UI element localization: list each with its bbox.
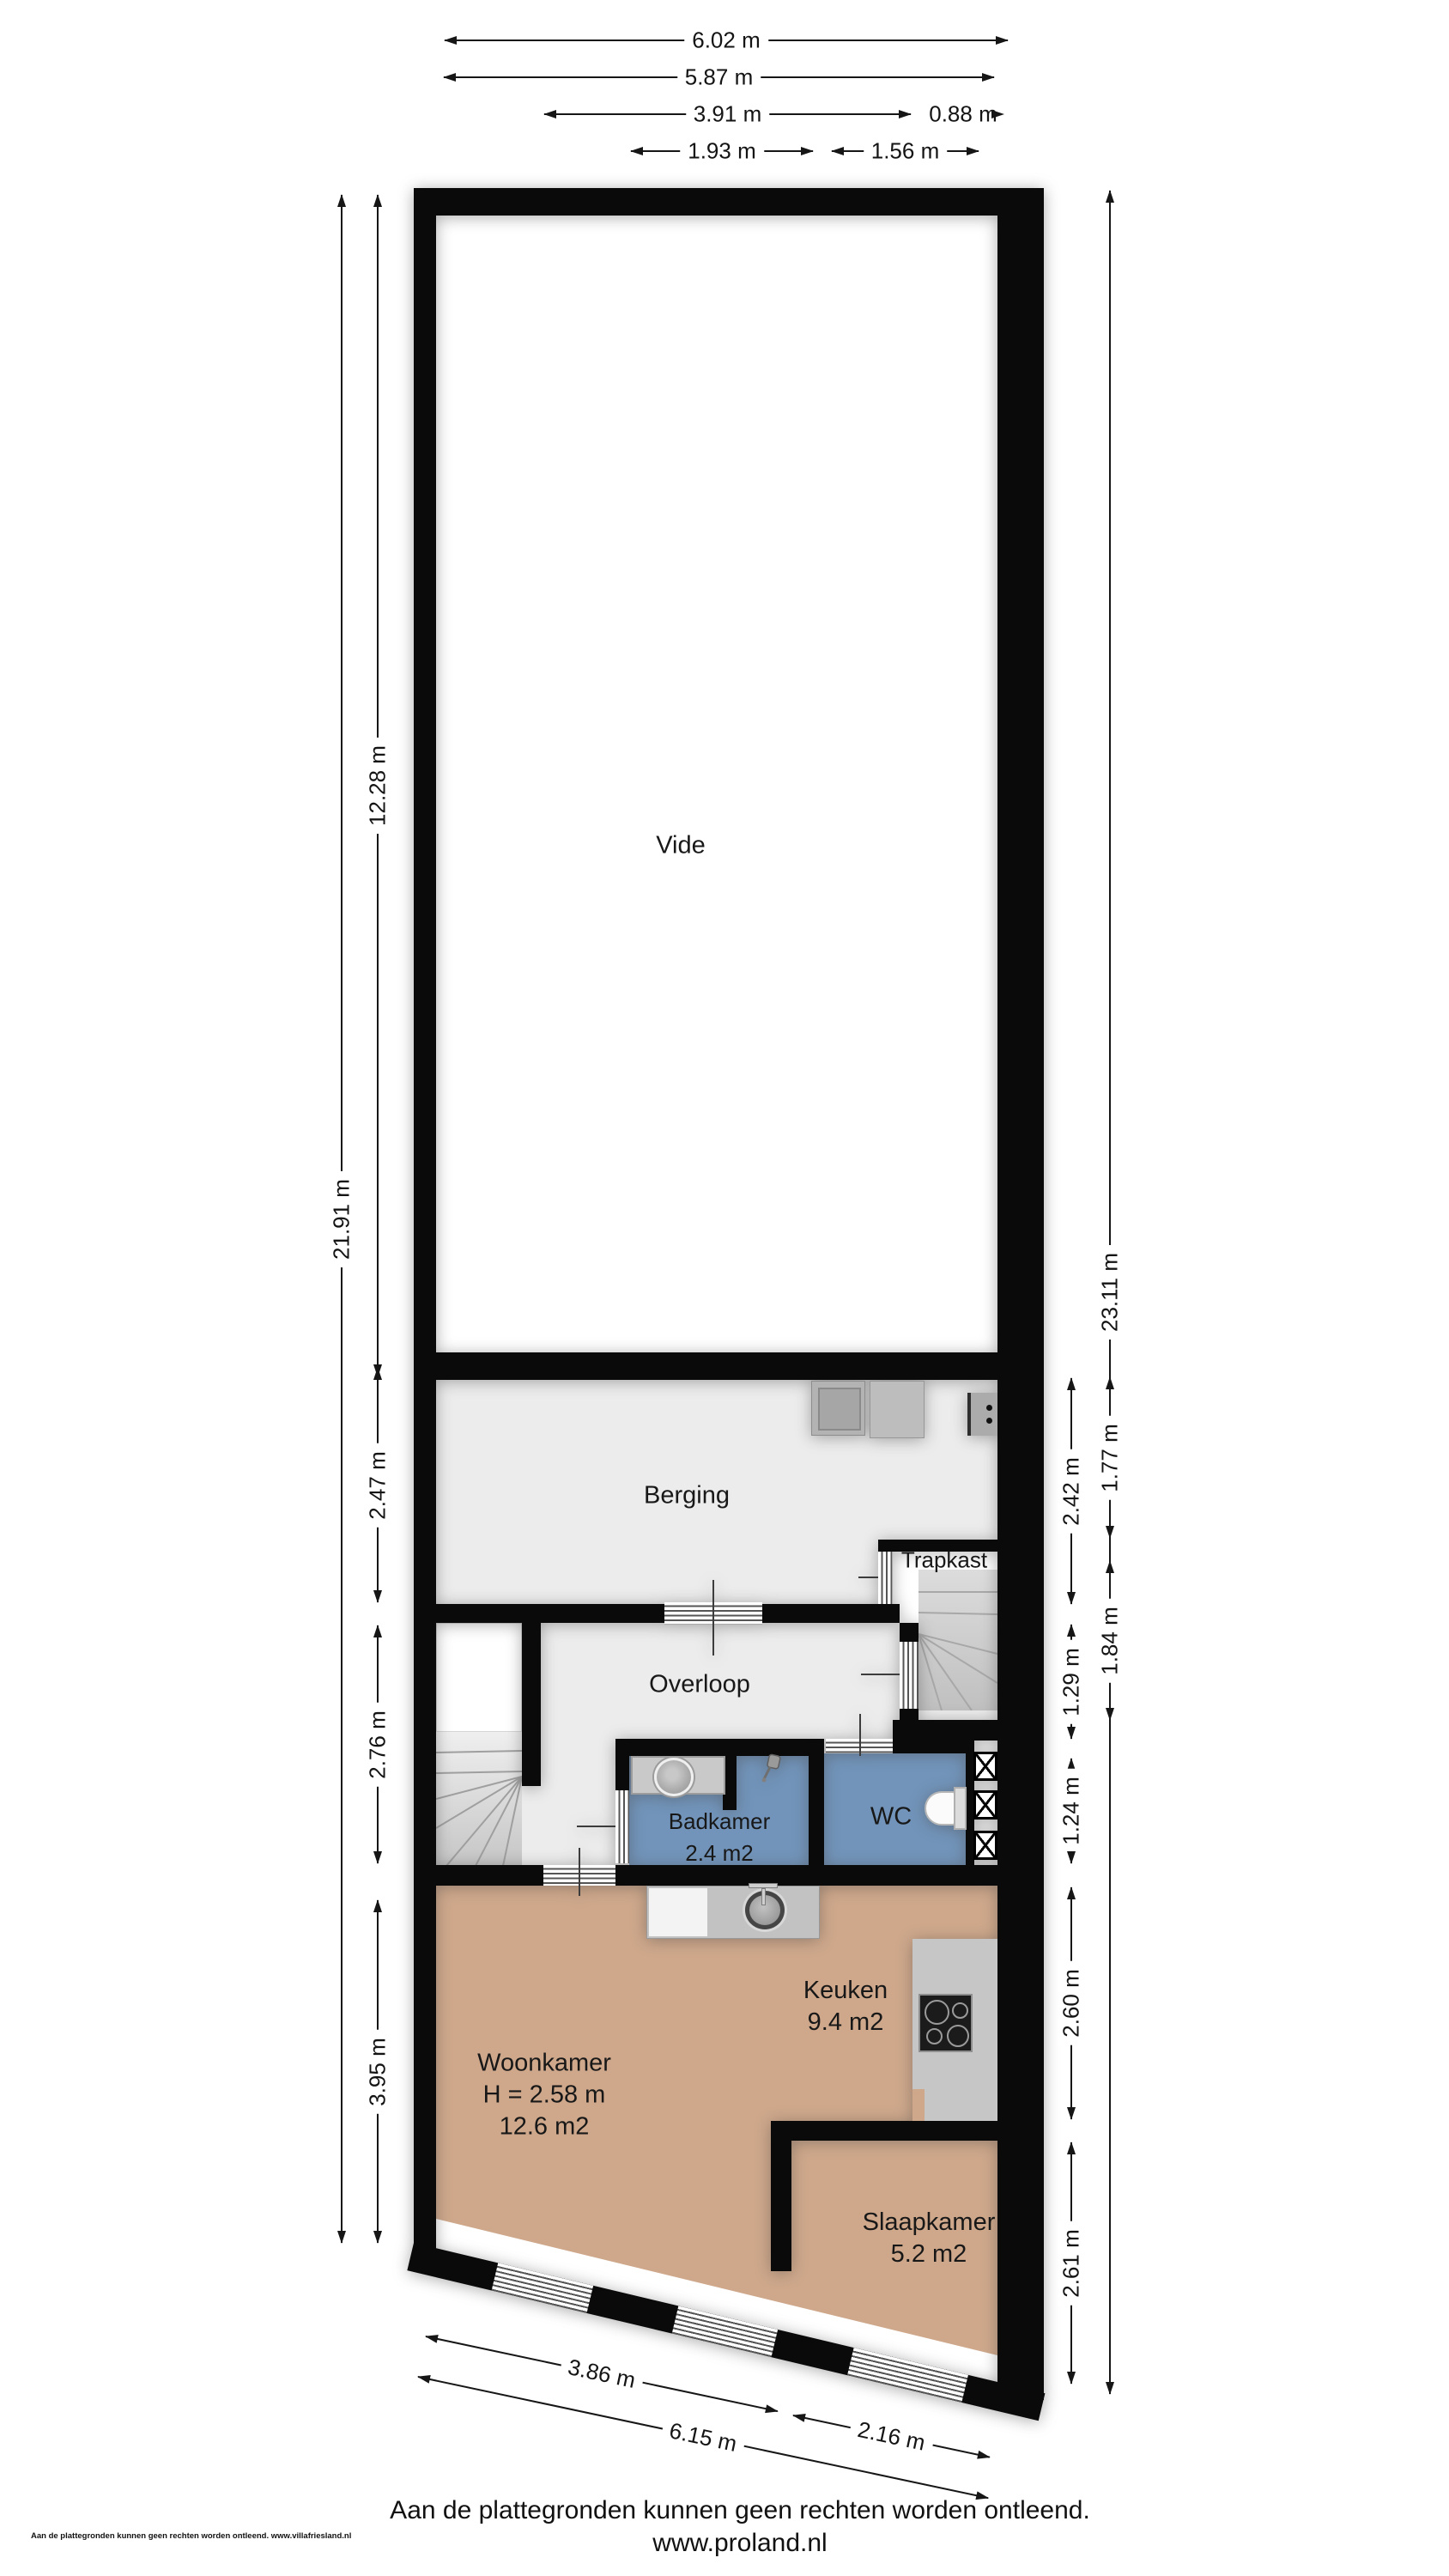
badkamer-door-opening: [615, 1790, 629, 1863]
trapkast-label: Trapkast: [901, 1545, 987, 1577]
website-text: www.proland.nl: [652, 2529, 827, 2558]
washing-machine: [811, 1381, 865, 1436]
dim-top-0-88: 0.88 m: [923, 113, 1003, 115]
dim-label: 1.56 m: [864, 138, 948, 165]
dim-right-2-60: 2.60 m: [1070, 1887, 1072, 2119]
washing-machine-door: [818, 1388, 861, 1431]
dim-label: 2.76 m: [365, 1703, 391, 1787]
badkamer-wc-wall: [809, 1739, 824, 1865]
kitchen-counter-white-section: [649, 1888, 707, 1936]
slaapkamer-name: Slaapkamer: [863, 2207, 996, 2239]
dim-left-woonkamer-height: 3.95 m: [377, 1900, 379, 2243]
dim-label: 2.61 m: [1058, 2221, 1085, 2306]
dim-label: 1.84 m: [1097, 1599, 1124, 1683]
cooktop: [919, 1994, 973, 2052]
vide-berging-wall: [436, 1352, 997, 1380]
woonkamer-area: 12.6 m2: [477, 2111, 611, 2143]
woonkamer-door-leaf: [579, 1848, 580, 1896]
shower-head-icon: [759, 1753, 781, 1783]
floorplan-canvas: Vide Berging Trapkast Overloop Badkamer …: [0, 0, 1449, 2576]
dim-top-1-93: 1.93 m: [631, 150, 813, 152]
badkamer-name: Badkamer: [669, 1806, 771, 1838]
overloop-woonkamer-wall-left: [436, 1865, 543, 1886]
trapkast-lower-door-opening: [900, 1642, 919, 1709]
dim-label: 1.24 m: [1058, 1769, 1085, 1853]
disclaimer-text: Aan de plattegronden kunnen geen rechten…: [390, 2496, 1090, 2525]
dim-label: 0.88 m: [921, 101, 1005, 128]
dim-left-overloop-height: 2.76 m: [377, 1625, 379, 1863]
dim-label: 1.29 m: [1058, 1640, 1085, 1724]
burner-4: [947, 2025, 969, 2047]
boiler-knob-2: [986, 1418, 992, 1424]
wc-door-leaf: [859, 1714, 861, 1756]
badkamer-top-wall: [615, 1739, 824, 1756]
wc-label: WC: [870, 1801, 912, 1833]
kitchen-counter-notch: [912, 2089, 925, 2121]
dim-top-1-56: 1.56 m: [832, 150, 979, 152]
dim-label: 6.02 m: [684, 27, 768, 54]
stair-stub-wall: [522, 1623, 541, 1786]
dim-label: 1.77 m: [1097, 1416, 1124, 1500]
kitchen-sink-counter: [646, 1886, 820, 1939]
toilet-tank: [954, 1787, 967, 1830]
dim-left-overall-height: 21.91 m: [341, 195, 343, 2243]
top-wall: [414, 188, 1044, 216]
vide-label: Vide: [656, 830, 706, 862]
berging-overloop-wall-left: [436, 1604, 664, 1623]
dim-label: 12.28 m: [365, 738, 391, 834]
burner-2: [952, 2002, 968, 2019]
dim-right-1-84: 1.84 m: [1109, 1561, 1111, 1720]
small-print-text: Aan de plattegronden kunnen geen rechten…: [31, 2531, 351, 2541]
berging-door-leaf: [712, 1580, 714, 1656]
trapkast-bottom-wall: [893, 1720, 997, 1741]
dim-label: 23.11 m: [1097, 1245, 1124, 1340]
slaapkamer-left-wall: [771, 2121, 791, 2271]
badkamer-area: 2.4 m2: [669, 1838, 771, 1869]
left-wall: [414, 188, 436, 2249]
slaapkamer-top-wall: [790, 2121, 997, 2141]
building-structure: [0, 0, 1449, 2576]
dim-top-inner-width: 5.87 m: [444, 76, 994, 78]
dim-right-2-61: 2.61 m: [1070, 2142, 1072, 2384]
trapkast-upper-door-leaf: [858, 1577, 878, 1578]
window-1: [492, 2263, 594, 2313]
dim-right-overall-height: 23.11 m: [1109, 191, 1111, 2394]
badkamer-left-wall: [615, 1739, 629, 1790]
shaft-box-2: [973, 1790, 997, 1820]
wc-top-wall: [893, 1739, 966, 1753]
window-2: [672, 2306, 778, 2357]
right-wall: [997, 188, 1044, 2400]
dim-label: 21.91 m: [329, 1171, 355, 1267]
dim-label: 2.42 m: [1058, 1449, 1085, 1534]
keuken-area: 9.4 m2: [803, 2007, 888, 2038]
dryer: [870, 1381, 925, 1438]
badkamer-door-leaf: [577, 1826, 615, 1827]
dim-right-1-29: 1.29 m: [1070, 1625, 1072, 1739]
slaapkamer-label: Slaapkamer 5.2 m2: [863, 2207, 996, 2270]
dim-left-vide-height: 12.28 m: [377, 195, 379, 1376]
dim-right-2-42: 2.42 m: [1070, 1378, 1072, 1604]
dim-right-1-24: 1.24 m: [1070, 1759, 1072, 1863]
boiler-knob-1: [986, 1405, 992, 1411]
overloop-label: Overloop: [649, 1669, 750, 1701]
dim-top-3-91: 3.91 m: [544, 113, 911, 115]
dim-label: 1.93 m: [680, 138, 764, 165]
badkamer-sink: [654, 1758, 694, 1796]
shaft-box-3: [973, 1831, 997, 1860]
woonkamer-label: Woonkamer H = 2.58 m 12.6 m2: [477, 2048, 611, 2143]
dim-label: 2.47 m: [365, 1443, 391, 1528]
shaft-box-1: [973, 1752, 997, 1781]
dim-label: 3.95 m: [365, 2030, 391, 2114]
boiler: [967, 1393, 997, 1436]
burner-1: [925, 2000, 949, 2025]
dim-label: 2.60 m: [1058, 1961, 1085, 2045]
woonkamer-name: Woonkamer: [477, 2048, 611, 2080]
window-3: [847, 2348, 968, 2403]
trapkast-upper-door-opening: [878, 1552, 893, 1604]
dim-label: 3.91 m: [686, 101, 770, 128]
trapkast-lower-door-leaf: [861, 1674, 900, 1675]
badkamer-label: Badkamer 2.4 m2: [669, 1806, 771, 1869]
burner-3: [926, 2028, 943, 2044]
dim-right-1-77: 1.77 m: [1109, 1377, 1111, 1538]
woonkamer-ceiling-height: H = 2.58 m: [477, 2080, 611, 2111]
dim-label: 5.87 m: [677, 64, 761, 91]
dim-left-berging-height: 2.47 m: [377, 1368, 379, 1602]
toilet-bowl: [925, 1791, 955, 1826]
kitchen-faucet-stem: [761, 1888, 766, 1905]
keuken-name: Keuken: [803, 1975, 888, 2007]
slaapkamer-area: 5.2 m2: [863, 2239, 996, 2270]
keuken-label: Keuken 9.4 m2: [803, 1975, 888, 2038]
dim-top-overall-width: 6.02 m: [445, 39, 1008, 41]
berging-label: Berging: [644, 1480, 730, 1512]
